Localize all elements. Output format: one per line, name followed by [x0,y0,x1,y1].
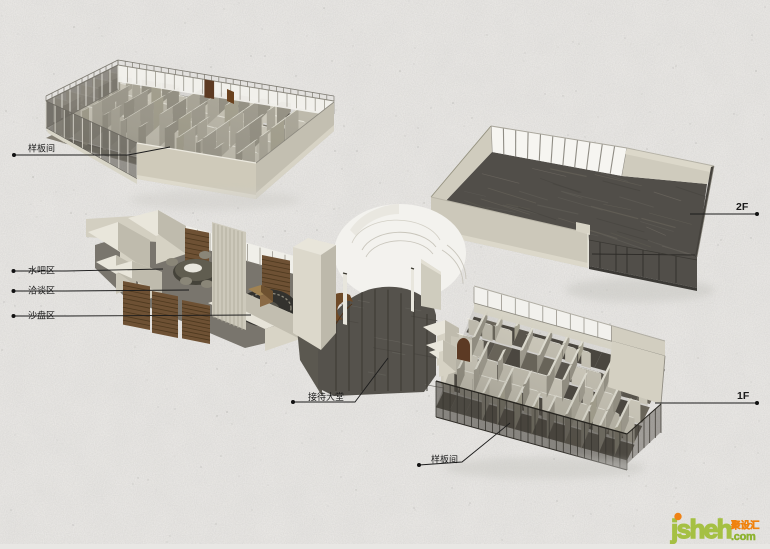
svg-text:接待大堂: 接待大堂 [308,391,344,402]
svg-text:2F: 2F [736,201,749,213]
svg-text:1F: 1F [737,390,750,402]
svg-text:样板间: 样板间 [28,143,55,154]
svg-text:水吧区: 水吧区 [28,265,55,276]
svg-text:沙盘区: 沙盘区 [28,310,55,321]
svg-text:聚设汇: 聚设汇 [730,520,760,532]
svg-text:洽谈区: 洽谈区 [28,285,55,296]
svg-text:.com: .com [731,531,756,543]
svg-text:样板间: 样板间 [431,454,458,465]
